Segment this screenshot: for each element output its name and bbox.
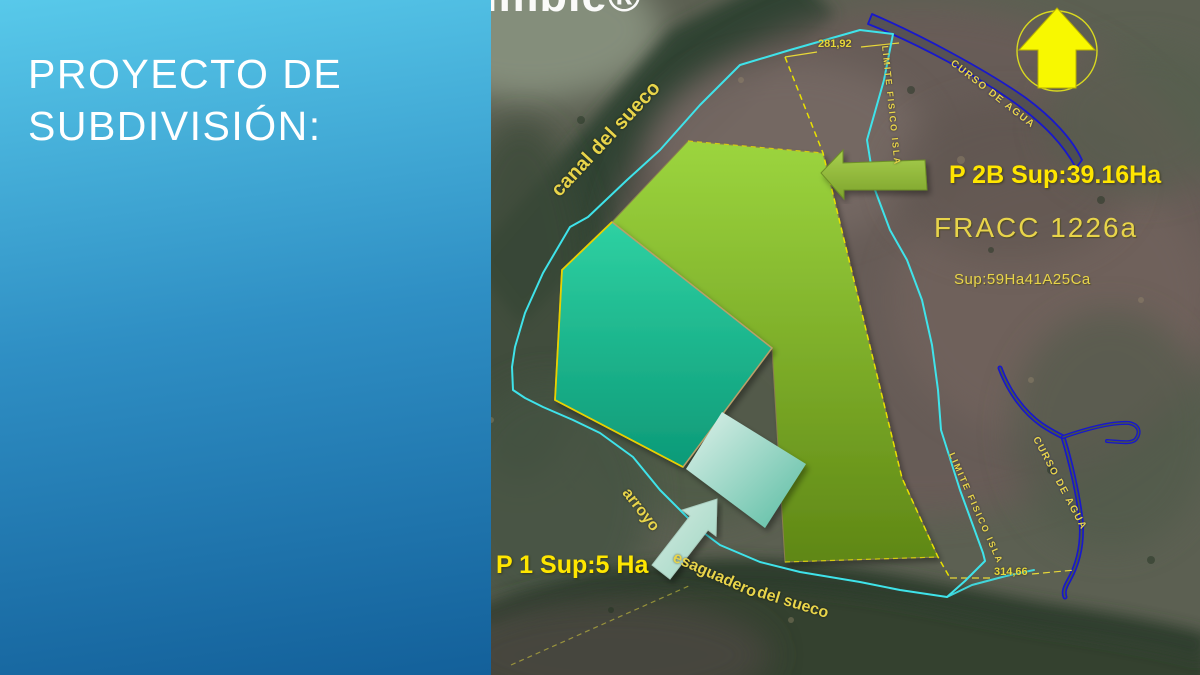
dimension-314-label: 314,66: [994, 566, 1028, 578]
parcel-p2b-label: P 2B Sup:39.16Ha: [949, 161, 1161, 190]
slide-root: PROYECTO DE SUBDIVISIÓN:: [0, 0, 1200, 675]
page-title-line2: SUBDIVISIÓN:: [28, 100, 342, 152]
page-title: PROYECTO DE SUBDIVISIÓN:: [28, 48, 342, 153]
imagery-watermark: imble®: [491, 0, 642, 22]
title-panel: PROYECTO DE SUBDIVISIÓN:: [0, 0, 491, 675]
page-title-line1: PROYECTO DE: [28, 48, 342, 100]
fracc-superficie-label: Sup:59Ha41A25Ca: [954, 271, 1091, 288]
dimension-281-label: 281,92: [818, 38, 852, 50]
parcel-p1-label: P 1 Sup:5 Ha: [496, 551, 648, 580]
subdivision-map: imble® canal del sueco 281,92 LIMITE FIS…: [491, 0, 1200, 675]
fracc-1226a-label: FRACC 1226a: [934, 212, 1138, 244]
